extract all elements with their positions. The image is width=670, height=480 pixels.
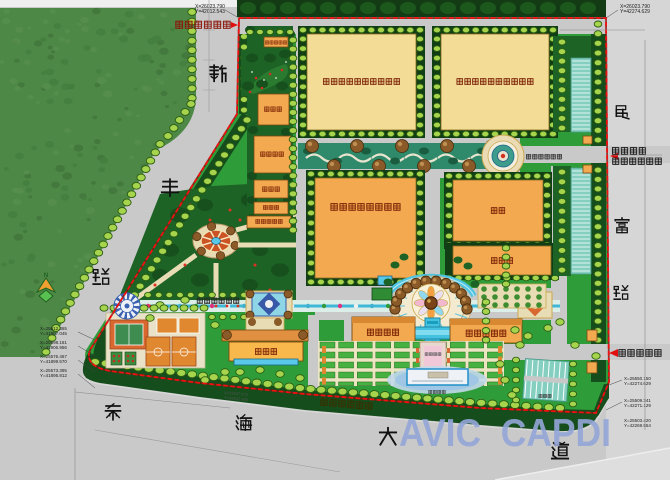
svg-text:N: N bbox=[44, 273, 48, 279]
svg-text:Y=42269.554: Y=42269.554 bbox=[624, 423, 651, 428]
svg-text:Y=41899.570: Y=41899.570 bbox=[40, 359, 67, 364]
svg-text:Y=42271.129: Y=42271.129 bbox=[624, 403, 651, 408]
svg-text:Y=42012.543: Y=42012.543 bbox=[195, 9, 225, 15]
svg-text:Y=42274.629: Y=42274.629 bbox=[620, 9, 650, 15]
svg-text:Y=41895.812: Y=41895.812 bbox=[40, 373, 67, 378]
svg-text:Y=41907.045: Y=41907.045 bbox=[40, 331, 67, 336]
svg-text:Y=42274.629: Y=42274.629 bbox=[624, 381, 651, 386]
svg-text:Y=41906.956: Y=41906.956 bbox=[40, 345, 67, 350]
svg-text:AVIC CAPDI: AVIC CAPDI bbox=[399, 412, 611, 455]
